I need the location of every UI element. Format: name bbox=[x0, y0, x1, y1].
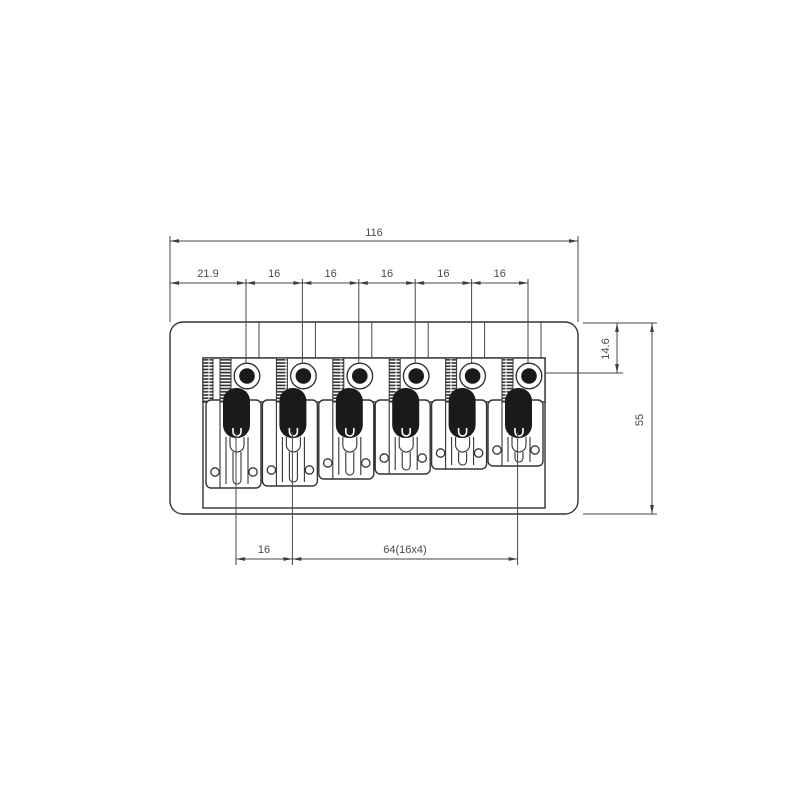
mount-screw-hole bbox=[418, 454, 426, 462]
dimension-arrow bbox=[615, 364, 619, 373]
dim-first-string-offset-label: 21.9 bbox=[197, 268, 218, 280]
string-hole bbox=[465, 368, 481, 384]
dim-string-spacing-label: 16 bbox=[268, 268, 280, 280]
intonation-screw-slot bbox=[336, 388, 363, 438]
dimension-arrow bbox=[237, 281, 246, 285]
mount-screw-hole bbox=[211, 468, 219, 476]
dimension-arrow bbox=[236, 557, 245, 561]
string-hole bbox=[296, 368, 312, 384]
mount-screw-hole bbox=[380, 454, 388, 462]
dim-string-spacing-label: 16 bbox=[494, 268, 506, 280]
page: 11621.9161616161614.6551664(16x4) bbox=[0, 0, 800, 800]
dimension-arrow bbox=[650, 505, 654, 514]
dimension-arrow bbox=[650, 323, 654, 332]
dim-screw-span-label: 64(16x4) bbox=[383, 544, 426, 556]
dimension-arrow bbox=[463, 281, 472, 285]
intonation-screw-slot bbox=[279, 388, 306, 438]
dimension-arrow bbox=[615, 323, 619, 332]
dimension-arrow bbox=[509, 557, 518, 561]
intonation-screw-slot bbox=[223, 388, 250, 438]
mount-screw-hole bbox=[474, 449, 482, 457]
mount-screw-hole bbox=[531, 446, 539, 454]
string-hole bbox=[239, 368, 255, 384]
mount-screw-hole bbox=[436, 449, 444, 457]
mount-screw-hole bbox=[267, 466, 275, 474]
dim-screw-spacing-label: 16 bbox=[258, 544, 270, 556]
dim-overall-width-label: 116 bbox=[365, 227, 383, 239]
dimension-arrow bbox=[569, 239, 578, 243]
bridge-technical-drawing: 11621.9161616161614.6551664(16x4) bbox=[0, 0, 800, 800]
dimension-arrow bbox=[519, 281, 528, 285]
mount-screw-hole bbox=[249, 468, 257, 476]
dim-string-spacing-label: 16 bbox=[324, 268, 336, 280]
dimension-arrow bbox=[415, 281, 424, 285]
string-hole bbox=[521, 368, 537, 384]
dimension-arrow bbox=[170, 281, 179, 285]
intonation-screw-slot bbox=[392, 388, 419, 438]
dimension-arrow bbox=[406, 281, 415, 285]
dim-top-offset-label: 14.6 bbox=[600, 338, 612, 359]
dimension-arrow bbox=[359, 281, 368, 285]
intonation-screw-slot bbox=[449, 388, 476, 438]
mount-screw-hole bbox=[324, 459, 332, 467]
string-hole bbox=[408, 368, 424, 384]
dimension-arrow bbox=[246, 281, 255, 285]
dim-string-spacing-label: 16 bbox=[437, 268, 449, 280]
mount-screw-hole bbox=[493, 446, 501, 454]
dimension-arrow bbox=[350, 281, 359, 285]
mount-screw-hole bbox=[362, 459, 370, 467]
dimension-arrow bbox=[283, 557, 292, 561]
dim-overall-depth-label: 55 bbox=[634, 414, 646, 426]
dimension-arrow bbox=[472, 281, 481, 285]
dimension-arrow bbox=[293, 281, 302, 285]
mount-screw-hole bbox=[305, 466, 313, 474]
dimension-arrow bbox=[302, 281, 311, 285]
dimension-arrow bbox=[170, 239, 179, 243]
edge-serration-strip bbox=[203, 358, 213, 402]
dimension-arrow bbox=[292, 557, 301, 561]
intonation-screw-slot bbox=[505, 388, 532, 438]
string-hole bbox=[352, 368, 368, 384]
dim-string-spacing-label: 16 bbox=[381, 268, 393, 280]
